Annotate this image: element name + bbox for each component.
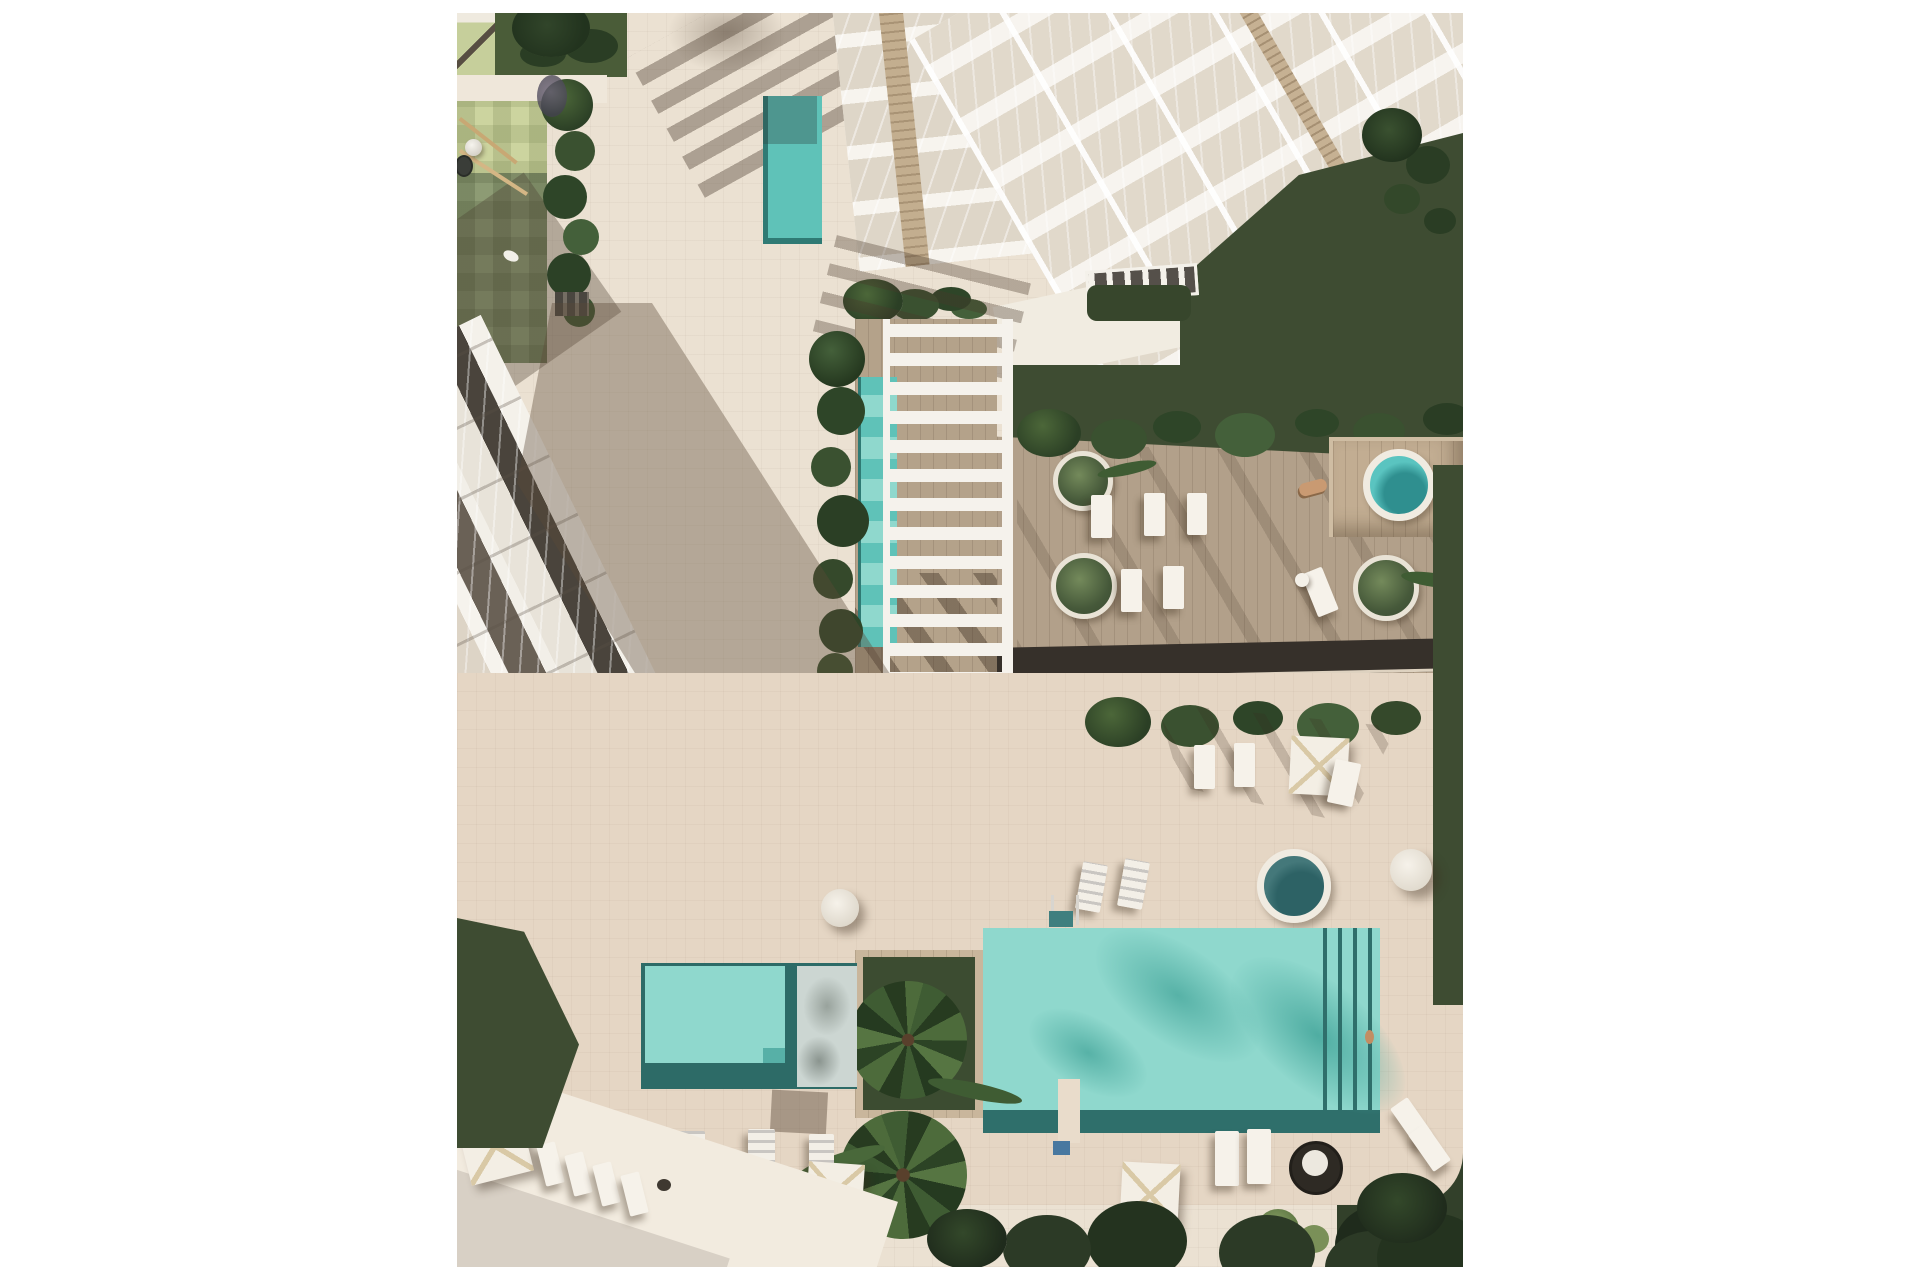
right-lawn-strip <box>1433 465 1463 1005</box>
br-lounger-2 <box>1247 1129 1271 1184</box>
umbrella-shadow-square <box>770 1090 828 1135</box>
plaza-lounger-2 <box>1234 743 1255 787</box>
bottom-shrubs <box>927 1209 1007 1267</box>
shelf-shadow-2 <box>797 1036 841 1086</box>
light-plants <box>1257 1209 1299 1249</box>
deck-lounger-3 <box>1121 569 1142 612</box>
round-daybed-right <box>1390 849 1432 891</box>
render-canvas <box>457 13 1463 1267</box>
deck-lounger-5 <box>1187 493 1207 535</box>
swimmer <box>1365 1030 1374 1044</box>
main-pool-step-notch <box>1058 1079 1080 1143</box>
deck-lounger-2 <box>1144 493 1165 536</box>
pergola-hedge-left <box>809 331 865 387</box>
hedge-plume <box>537 75 567 117</box>
deck-lounger-1 <box>1091 495 1112 538</box>
plaza-jacuzzi <box>1257 849 1331 923</box>
main-pool <box>983 928 1380 1133</box>
lap-pool-upper-shade <box>763 96 817 144</box>
dark-round-chair-cushion <box>1302 1150 1328 1176</box>
main-pool-lane-slats <box>1323 928 1375 1110</box>
plaza-soft-shadow <box>667 13 787 73</box>
shelf-shadow-1 <box>803 976 851 1036</box>
bottom-right-shrubs <box>1357 1173 1447 1243</box>
trees-right-edge <box>1362 108 1422 162</box>
grass-under-balustrade <box>1087 285 1191 321</box>
dark-round-chair <box>1289 1141 1343 1195</box>
umbrella-4 <box>1119 1162 1180 1229</box>
plaza-lounger-1 <box>1194 745 1215 789</box>
kids-pool-shelf <box>797 966 857 1087</box>
deck-lounger-4 <box>1163 566 1184 609</box>
play-dome <box>465 139 482 156</box>
planter-2 <box>1051 553 1117 619</box>
page: { "image": { "kind": "aerial architectur… <box>0 0 1920 1280</box>
pool-ladder-step <box>1049 911 1073 927</box>
main-pool-blue-mat <box>1053 1141 1070 1155</box>
deck-hedge-row <box>1017 409 1081 457</box>
kids-pool-step <box>763 1048 785 1063</box>
deck-jacuzzi <box>1363 449 1435 521</box>
round-daybed-left <box>821 889 859 927</box>
walk-dark-item <box>657 1179 671 1191</box>
br-lounger-1 <box>1215 1131 1239 1186</box>
deck-side-table <box>1295 573 1309 587</box>
planter-3 <box>1353 555 1419 621</box>
plaza-hedge-row <box>1085 697 1151 747</box>
